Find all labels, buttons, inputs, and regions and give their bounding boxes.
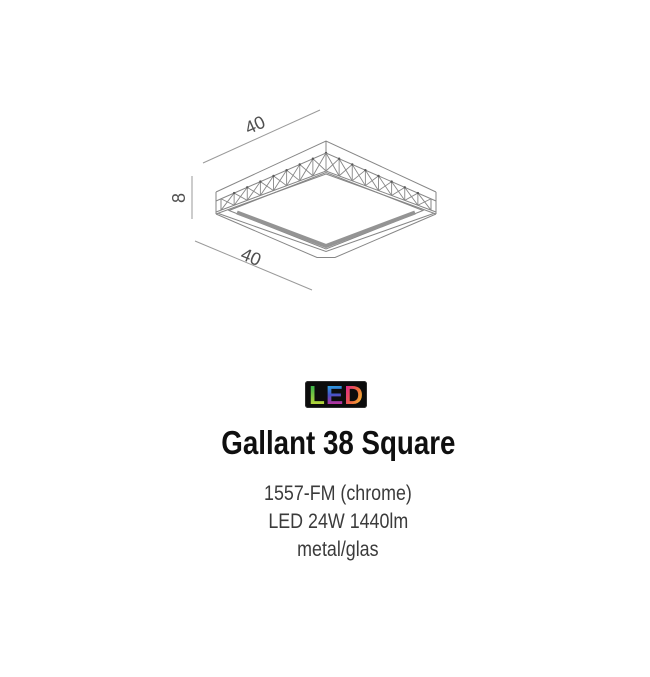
led-letter-d: D bbox=[344, 382, 363, 408]
product-power-text: LED 24W 1440lm bbox=[268, 508, 408, 536]
product-title: Gallant 38 Square bbox=[26, 426, 650, 459]
dim-label-width-top: 40 bbox=[242, 112, 269, 139]
product-code: 1557-FM (chrome) bbox=[26, 480, 650, 508]
product-material: metal/glas bbox=[26, 536, 650, 564]
led-badge: L E D bbox=[305, 381, 367, 408]
product-title-text: Gallant 38 Square bbox=[221, 426, 455, 459]
glass-panel bbox=[229, 173, 423, 250]
dim-label-width-bottom: 40 bbox=[238, 244, 264, 270]
product-specs: 1557-FM (chrome) LED 24W 1440lm metal/gl… bbox=[26, 480, 650, 564]
dim-label-height: 8 bbox=[169, 193, 189, 203]
product-code-text: 1557-FM (chrome) bbox=[264, 480, 412, 508]
product-power: LED 24W 1440lm bbox=[26, 508, 650, 536]
product-card: 40 8 40 L E D Gallant 38 Square 1557-FM … bbox=[0, 0, 650, 677]
led-letter-l: L bbox=[309, 382, 325, 408]
technical-drawing: 40 8 40 bbox=[0, 0, 650, 340]
led-letter-e: E bbox=[326, 382, 343, 408]
product-material-text: metal/glas bbox=[297, 536, 378, 564]
